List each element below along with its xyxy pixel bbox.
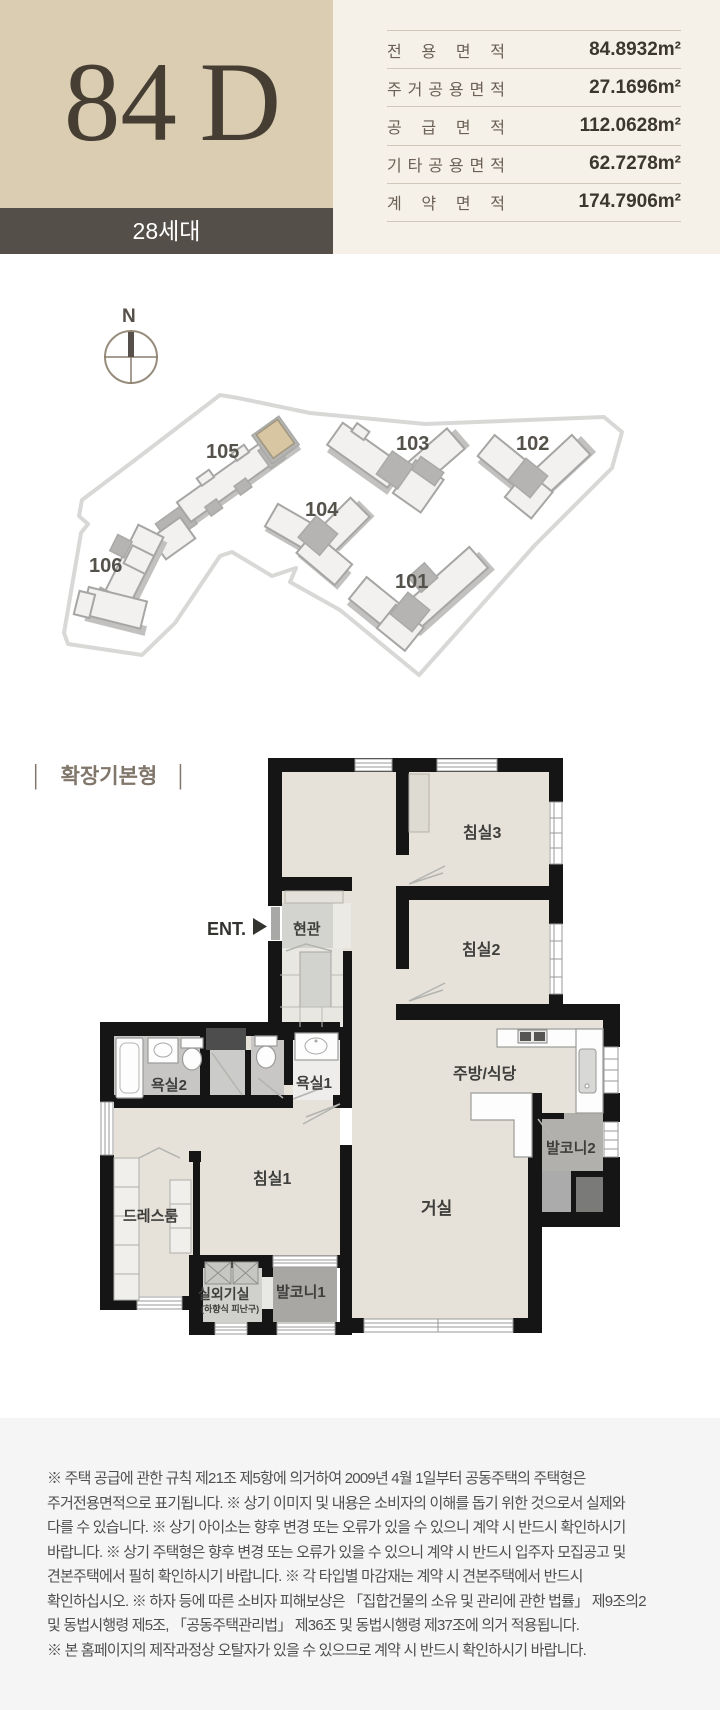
svg-text:현관: 현관	[293, 921, 321, 938]
svg-text:침실3: 침실3	[463, 823, 501, 842]
svg-text:ENT.: ENT.	[207, 919, 246, 939]
svg-text:(하향식 피난구): (하향식 피난구)	[201, 1303, 259, 1314]
svg-text:거실: 거실	[421, 1199, 452, 1218]
svg-text:실외기실: 실외기실	[198, 1286, 250, 1302]
svg-text:105: 105	[206, 441, 239, 463]
svg-text:104: 104	[305, 499, 339, 521]
svg-text:발코니1: 발코니1	[276, 1284, 326, 1301]
svg-text:주방/식당: 주방/식당	[453, 1065, 517, 1083]
svg-text:103: 103	[396, 433, 429, 455]
svg-text:침실2: 침실2	[462, 940, 500, 959]
svg-text:욕실2: 욕실2	[151, 1077, 187, 1094]
svg-text:발코니2: 발코니2	[546, 1140, 596, 1157]
svg-text:106: 106	[89, 555, 122, 577]
svg-text:드레스룸: 드레스룸	[123, 1208, 178, 1225]
svg-text:침실1: 침실1	[253, 1169, 291, 1188]
svg-text:102: 102	[516, 433, 549, 455]
svg-text:욕실1: 욕실1	[296, 1075, 332, 1092]
svg-text:101: 101	[395, 571, 428, 593]
svg-text:N: N	[122, 306, 136, 327]
